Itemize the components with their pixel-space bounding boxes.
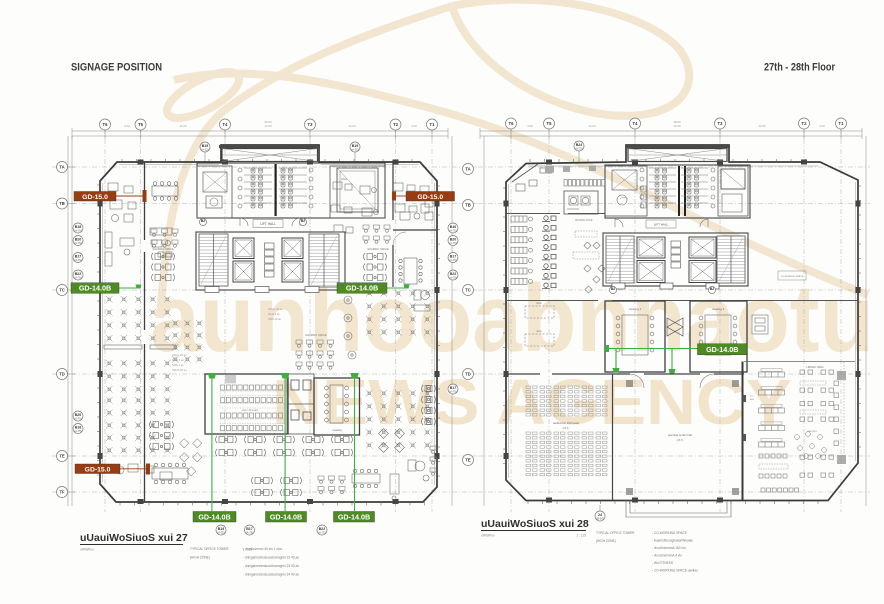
svg-text:SWS 1 au: SWS 1 au: [172, 363, 184, 367]
svg-text:12.00: 12.00: [265, 124, 272, 128]
svg-text:(A-75): (A-75): [449, 228, 456, 232]
svg-text:B20: B20: [450, 237, 457, 241]
svg-text:12.00: 12.00: [180, 124, 187, 128]
svg-text:(A-75): (A-75): [449, 241, 456, 245]
svg-text:(A-75): (A-75): [449, 258, 456, 262]
svg-text:TB: TB: [465, 203, 471, 208]
svg-text:B17: B17: [450, 254, 457, 258]
svg-text:49Ans 26 au: 49Ans 26 au: [268, 307, 283, 311]
svg-text:4.00: 4.00: [527, 124, 533, 128]
svg-text:GD-15.0: GD-15.0: [85, 466, 111, 473]
svg-text:office: office: [341, 177, 348, 181]
svg-text:- CO-WORKING SPACE uaviiau: - CO-WORKING SPACE uaviiau: [652, 569, 698, 573]
svg-text:B20: B20: [75, 413, 82, 417]
svg-text:SHARING SPACE: SHARING SPACE: [367, 247, 388, 251]
svg-text:AHU: AHU: [750, 398, 755, 401]
svg-text:4.00: 4.00: [124, 124, 130, 128]
svg-text:(28 fl.): (28 fl.): [563, 427, 570, 430]
svg-text:T2: T2: [393, 122, 399, 127]
svg-text:- Wu FITNESS: - Wu FITNESS: [652, 561, 673, 565]
svg-text:LIBRARY AREA: LIBRARY AREA: [806, 366, 824, 369]
svg-text:meeting 1: meeting 1: [629, 307, 642, 311]
svg-text:B2: B2: [201, 219, 206, 223]
svg-text:T5: T5: [547, 121, 553, 126]
svg-text:TF: TF: [59, 490, 65, 495]
svg-text:(28 fl.): (28 fl.): [677, 439, 684, 442]
svg-text:- AuamsiSuusgnaaonWuuiau: - AuamsiSuusgnaaonWuuiau: [652, 539, 693, 543]
svg-text:B18: B18: [75, 425, 82, 429]
svg-text:B20: B20: [75, 237, 82, 241]
svg-text:(A-32): (A-32): [351, 147, 358, 151]
svg-text:24: 24: [598, 513, 602, 517]
svg-text:12.00: 12.00: [589, 124, 596, 128]
svg-text:T4: T4: [633, 121, 639, 126]
svg-text:(A-75): (A-75): [449, 275, 456, 279]
svg-text:iWuA 2 au: iWuA 2 au: [172, 358, 184, 362]
svg-text:(HIGH ZONE): (HIGH ZONE): [190, 556, 210, 560]
svg-text:SWS 26 au: SWS 26 au: [268, 317, 282, 321]
svg-text:(A-75): (A-75): [74, 416, 81, 420]
svg-text:GD-14.0B: GD-14.0B: [338, 512, 370, 521]
svg-text:(A-75): (A-75): [74, 258, 81, 262]
svg-text:B2: B2: [710, 287, 715, 291]
svg-text:LIFT HALL: LIFT HALL: [654, 223, 669, 227]
svg-text:(A-75): (A-75): [318, 530, 325, 534]
svg-text:GD-14.0B: GD-14.0B: [79, 284, 111, 293]
svg-text:B17: B17: [450, 386, 457, 390]
svg-text:36.00: 36.00: [265, 120, 272, 124]
svg-text:table: table: [536, 329, 542, 333]
svg-text:(B-24): (B-24): [596, 516, 603, 520]
svg-text:uUauiWoSiuoS xui 27: uUauiWoSiuoS xui 27: [80, 532, 188, 544]
svg-text:B19: B19: [218, 527, 225, 531]
svg-text:B17: B17: [246, 527, 253, 531]
svg-text:- dningannsnnsiuuaUsvnagnvi 2: - dningannsnnsiuuaUsvnagnvi 24 40 au: [243, 573, 299, 577]
svg-text:B19: B19: [202, 144, 209, 148]
svg-text:CO-WORKING SPACE: CO-WORKING SPACE: [781, 275, 804, 278]
svg-text:room 40 seats: room 40 seats: [242, 408, 259, 412]
svg-text:auditorium 160 seats: auditorium 160 seats: [553, 421, 580, 425]
svg-text:meeting 2: meeting 2: [712, 307, 725, 311]
svg-text:uWSWnu: uWSWnu: [80, 548, 94, 552]
svg-text:GD-14.0B: GD-14.0B: [198, 512, 230, 521]
svg-text:- viooUsvnnnnA 160 viu: - viooUsvnnnnA 160 viu: [652, 546, 686, 550]
svg-text:4.00: 4.00: [819, 124, 825, 128]
svg-text:B2: B2: [611, 287, 616, 291]
svg-text:B22: B22: [75, 272, 82, 276]
svg-text:TC: TC: [465, 288, 471, 293]
svg-text:NEWS AGENCY: NEWS AGENCY: [272, 366, 792, 438]
svg-text:SIGNAGE POSITION: SIGNAGE POSITION: [71, 62, 162, 74]
svg-text:uWSWnu: uWSWnu: [481, 534, 495, 538]
svg-text:27C: 27C: [750, 396, 754, 398]
svg-text:TE: TE: [59, 454, 65, 459]
svg-text:B19: B19: [352, 144, 359, 148]
svg-text:(A-75): (A-75): [74, 228, 81, 232]
svg-text:B22: B22: [319, 527, 326, 531]
svg-text:12.00: 12.00: [759, 124, 766, 128]
svg-text:TB: TB: [59, 201, 65, 206]
svg-text:TD: TD: [465, 372, 471, 377]
svg-text:- viooUsvnnnu 40 viu 1 vioo: - viooUsvnnnu 40 viu 1 vioo: [243, 547, 282, 551]
svg-text:SHARING SPACE: SHARING SPACE: [305, 333, 326, 337]
svg-text:learning center hall: learning center hall: [668, 433, 692, 437]
svg-text:LIFT HALL: LIFT HALL: [260, 222, 276, 226]
svg-text:T2: T2: [802, 121, 808, 126]
svg-text:T4: T4: [223, 122, 229, 127]
svg-text:TYPICAL OFFICE TOWER: TYPICAL OFFICE TOWER: [596, 531, 635, 535]
svg-text:B16: B16: [450, 225, 457, 229]
svg-text:TA: TA: [465, 167, 470, 172]
svg-text:(HIGH ZONE): (HIGH ZONE): [596, 539, 616, 543]
svg-text:4.00: 4.00: [411, 124, 417, 128]
svg-text:B22: B22: [450, 272, 457, 276]
svg-text:T6: T6: [103, 122, 109, 127]
svg-text:table: table: [536, 301, 542, 305]
svg-text:(A-75): (A-75): [246, 530, 253, 534]
svg-text:(A-75): (A-75): [449, 389, 456, 393]
svg-text:(A-75): (A-75): [74, 241, 81, 245]
svg-text:12.00: 12.00: [674, 124, 681, 128]
svg-text:GD-14.0B: GD-14.0B: [270, 512, 302, 521]
svg-text:1 : 125: 1 : 125: [576, 534, 586, 538]
svg-text:B17: B17: [75, 254, 82, 258]
svg-text:- viooUsvnnnnA 4 viu: - viooUsvnnnnA 4 viu: [652, 554, 682, 558]
svg-text:- dningannsnnsiuuaUsvnagnvi 2: - dningannsnnsiuuaUsvnagnvi 22 40 au: [243, 556, 299, 560]
svg-text:49Ans 26 au: 49Ans 26 au: [172, 353, 187, 357]
svg-text:T3: T3: [308, 122, 314, 127]
svg-text:TD: TD: [59, 372, 65, 377]
svg-text:SHARING ZONE: SHARING ZONE: [575, 219, 593, 222]
svg-text:- dningannsnnsiuuaUsvnagnvi 2: - dningannsnnsiuuaUsvnagnvi 23 40 au: [243, 564, 299, 568]
svg-text:GD-14.0B: GD-14.0B: [346, 284, 378, 293]
svg-text:TYPICAL OFFICE TOWER: TYPICAL OFFICE TOWER: [190, 547, 229, 551]
svg-text:(A-75): (A-75): [74, 429, 81, 433]
svg-text:T1: T1: [839, 121, 845, 126]
svg-text:TC: TC: [59, 288, 65, 293]
svg-text:iWuA 2 au: iWuA 2 au: [268, 312, 280, 316]
svg-text:B24: B24: [576, 143, 583, 147]
svg-text:T5: T5: [138, 122, 144, 127]
svg-text:12.00: 12.00: [349, 124, 356, 128]
svg-text:(A-32): (A-32): [201, 147, 208, 151]
svg-text:(A-32): (A-32): [217, 530, 224, 534]
svg-text:meeting: meeting: [332, 428, 342, 432]
svg-text:SWnS 26 au: SWnS 26 au: [172, 368, 187, 372]
svg-text:aunhooabnnaotu: aunhooabnnaotu: [150, 265, 874, 372]
svg-text:GD-15.0: GD-15.0: [417, 194, 443, 201]
svg-text:(A-75): (A-75): [74, 275, 81, 279]
svg-text:T3: T3: [718, 121, 724, 126]
svg-text:B2: B2: [301, 219, 306, 223]
svg-text:B18: B18: [75, 225, 82, 229]
svg-text:27th - 28th Floor: 27th - 28th Floor: [764, 62, 836, 74]
svg-text:T1: T1: [430, 122, 436, 127]
svg-text:- CO-WORKING SPACE: - CO-WORKING SPACE: [652, 531, 687, 535]
svg-text:38.00: 38.00: [674, 120, 681, 124]
svg-text:TE: TE: [465, 458, 471, 463]
svg-text:TA: TA: [59, 165, 64, 170]
svg-text:GD-14.0B: GD-14.0B: [706, 345, 738, 354]
svg-text:T6: T6: [509, 121, 515, 126]
svg-text:GD-15.0: GD-15.0: [82, 194, 108, 201]
svg-text:SEATING: SEATING: [807, 430, 817, 433]
svg-text:SHARING SPACE: SHARING SPACE: [152, 247, 173, 251]
svg-text:uUauiWoSiuoS xui 28: uUauiWoSiuoS xui 28: [481, 518, 589, 530]
svg-text:(A-75): (A-75): [575, 146, 582, 150]
